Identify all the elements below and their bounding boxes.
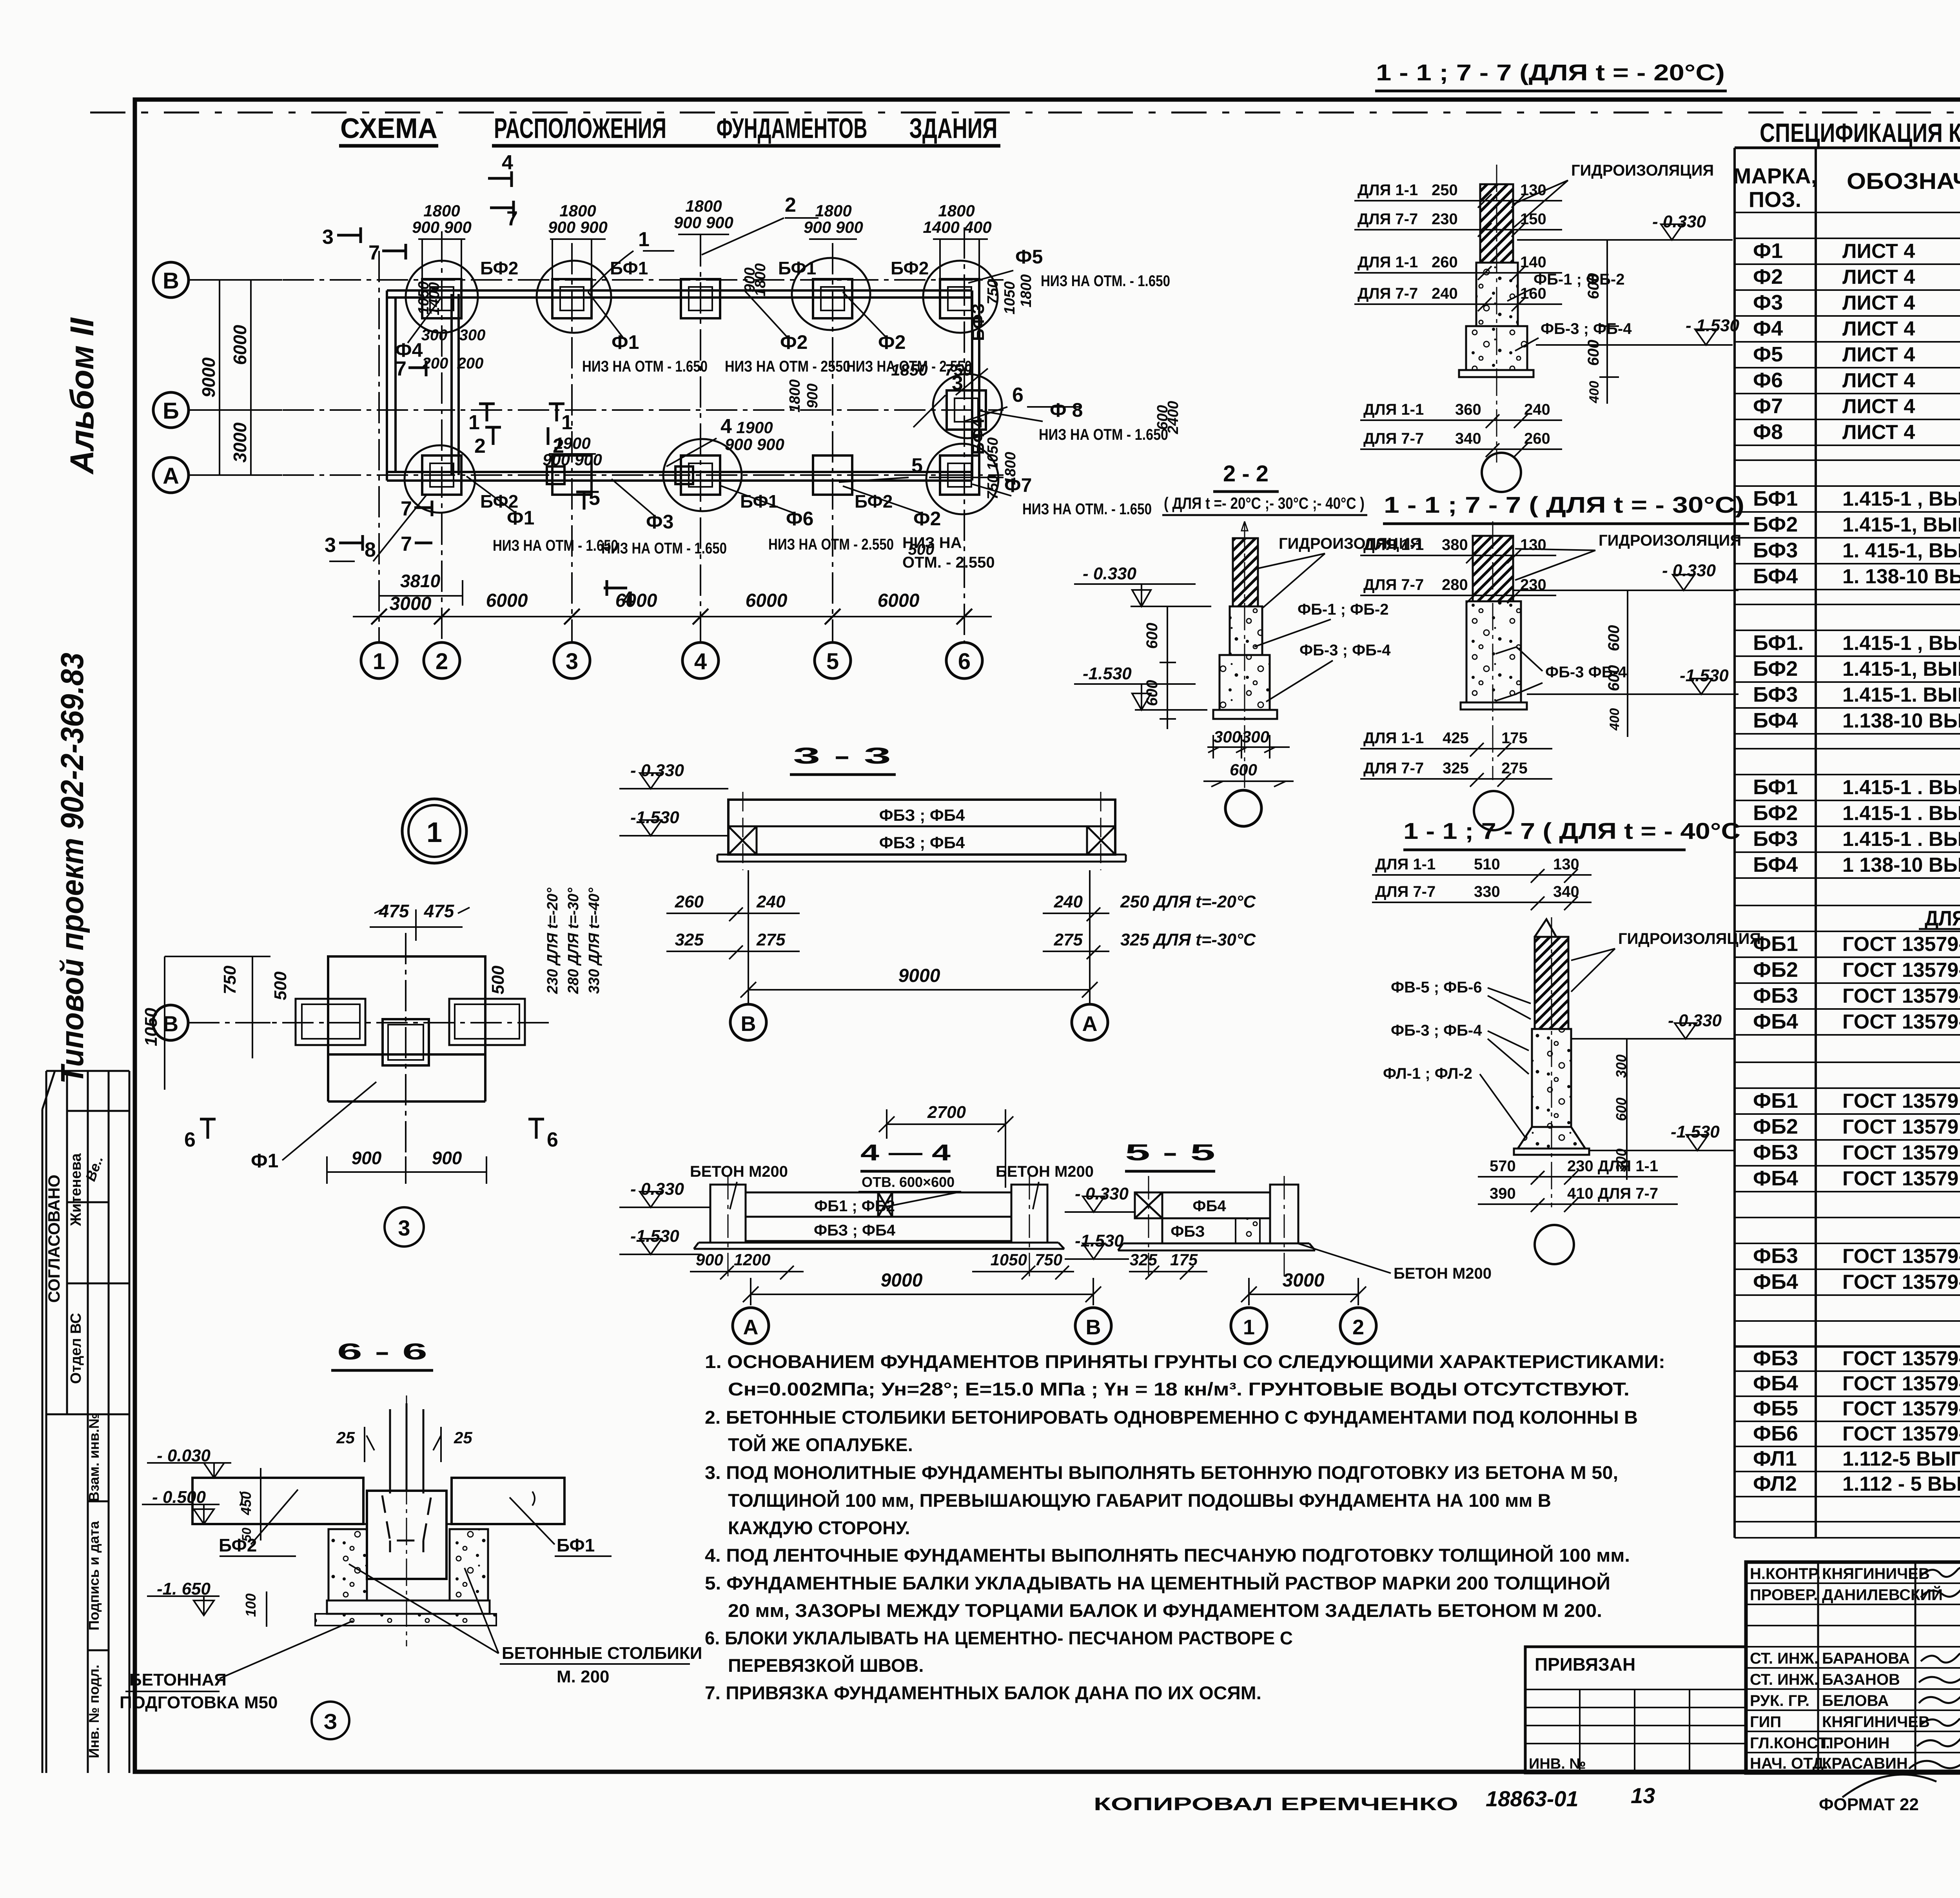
- svg-text:БФ4: БФ4: [969, 418, 988, 455]
- svg-text:1800: 1800: [1018, 274, 1034, 308]
- svg-text:ОБОЗНАЧЕНИЕ: ОБОЗНАЧЕНИЕ: [1847, 169, 1960, 194]
- svg-text:2700: 2700: [927, 1103, 966, 1122]
- svg-text:6: 6: [1012, 384, 1024, 406]
- svg-text:750: 750: [1035, 1250, 1062, 1269]
- svg-text:СТ. ИНЖ.: СТ. ИНЖ.: [1750, 1671, 1818, 1688]
- svg-text:Ф4: Ф4: [1753, 317, 1783, 340]
- svg-text:1800: 1800: [787, 379, 803, 413]
- svg-text:900: 900: [804, 383, 821, 408]
- svg-text:9000: 9000: [898, 965, 940, 986]
- svg-text:280 ДЛЯ t=-30°: 280 ДЛЯ t=-30°: [565, 887, 582, 994]
- svg-text:1. 138-10 ВЫП1.: 1. 138-10 ВЫП1.: [1842, 565, 1960, 588]
- svg-text:БЕЛОВА: БЕЛОВА: [1822, 1692, 1889, 1709]
- svg-text:Ф2: Ф2: [1753, 265, 1783, 289]
- svg-text:ДЛЯ 1-1: ДЛЯ 1-1: [1363, 729, 1424, 747]
- svg-text:А: А: [1082, 1012, 1098, 1036]
- svg-text:ПРИВЯЗАН: ПРИВЯЗАН: [1535, 1654, 1635, 1675]
- svg-text:ЗДАНИЯ: ЗДАНИЯ: [909, 113, 998, 144]
- svg-text:НИЗ НА ОТМ - 1.650: НИЗ НА ОТМ - 1.650: [601, 540, 727, 557]
- svg-text:300: 300: [1242, 728, 1269, 746]
- svg-text:БФЗ: БФЗ: [969, 303, 988, 341]
- svg-text:ФБ4: ФБ4: [1753, 1270, 1798, 1294]
- svg-text:750: 750: [220, 965, 240, 994]
- svg-text:БЕТОН М200: БЕТОН М200: [996, 1163, 1094, 1180]
- svg-text:3 - 3: 3 - 3: [793, 743, 891, 769]
- svg-text:БФ4: БФ4: [1753, 709, 1798, 732]
- svg-text:РУК. ГР.: РУК. ГР.: [1750, 1692, 1809, 1709]
- svg-text:БФ3: БФ3: [1753, 683, 1798, 706]
- svg-text:340: 340: [1455, 430, 1481, 447]
- svg-text:БФ2: БФ2: [219, 1535, 257, 1555]
- svg-text:НИЗ НА ОТМ - 1.650: НИЗ НА ОТМ - 1.650: [582, 358, 708, 375]
- svg-text:ЛИСТ 4: ЛИСТ 4: [1842, 343, 1915, 366]
- svg-text:1: 1: [638, 228, 650, 251]
- svg-text:БФ1: БФ1: [740, 491, 778, 512]
- svg-text:325: 325: [1130, 1250, 1158, 1269]
- svg-text:БФ2: БФ2: [480, 258, 518, 278]
- svg-text:ФБ3: ФБ3: [1753, 1244, 1798, 1268]
- svg-text:2 - 2: 2 - 2: [1223, 461, 1269, 486]
- svg-text:( ДЛЯ t =- 20°C ;- 30°C ;- 40°: ( ДЛЯ t =- 20°C ;- 30°C ;- 40°C ): [1164, 494, 1365, 512]
- svg-text:900 900: 900 900: [674, 213, 733, 232]
- svg-text:ОТВ. 600×600: ОТВ. 600×600: [862, 1174, 955, 1190]
- svg-text:900: 900: [432, 1148, 462, 1168]
- svg-text:900 900: 900 900: [548, 218, 608, 236]
- svg-text:Взам. инв.№: Взам. инв.№: [86, 1413, 102, 1502]
- svg-text:7: 7: [401, 533, 412, 555]
- svg-text:БЕТОННЫЕ СТОЛБИКИ: БЕТОННЫЕ СТОЛБИКИ: [502, 1644, 702, 1663]
- svg-text:6000: 6000: [486, 590, 528, 611]
- svg-text:ГОСТ 13579-78: ГОСТ 13579-78: [1842, 1011, 1960, 1033]
- svg-text:-1.530: -1.530: [1680, 666, 1729, 685]
- svg-text:МАРКА,: МАРКА,: [1733, 163, 1817, 188]
- svg-text:2: 2: [785, 194, 796, 216]
- svg-text:1200: 1200: [734, 1250, 770, 1269]
- svg-text:ФБ3: ФБ3: [1753, 1346, 1798, 1370]
- svg-text:1.138-10 ВЫП 1: 1.138-10 ВЫП 1: [1842, 709, 1960, 732]
- svg-text:230: 230: [1432, 210, 1458, 228]
- svg-text:ФБ-1 ; ФБ-2: ФБ-1 ; ФБ-2: [1298, 601, 1388, 618]
- svg-text:7: 7: [401, 497, 412, 520]
- svg-text:3810: 3810: [400, 571, 441, 591]
- svg-text:ФЛ1: ФЛ1: [1753, 1447, 1797, 1470]
- svg-text:1: 1: [373, 649, 385, 674]
- svg-text:4: 4: [720, 415, 732, 438]
- svg-text:9000: 9000: [198, 357, 219, 397]
- svg-text:Ф7: Ф7: [1753, 394, 1783, 418]
- svg-text:ФБ4: ФБ4: [1753, 1372, 1798, 1395]
- svg-text:410 ДЛЯ 7-7: 410 ДЛЯ 7-7: [1567, 1185, 1658, 1202]
- svg-text:БАЗАНОВ: БАЗАНОВ: [1822, 1671, 1900, 1688]
- svg-text:ОТМ. - 2.550: ОТМ. - 2.550: [902, 554, 995, 571]
- svg-text:ГОСТ 13579-78: ГОСТ 13579-78: [1842, 1347, 1960, 1370]
- svg-text:ФБ4: ФБ4: [1753, 1167, 1798, 1190]
- svg-text:4 — 4: 4 — 4: [860, 1140, 951, 1165]
- svg-text:ДЛЯ 1-1: ДЛЯ 1-1: [1357, 181, 1418, 199]
- svg-text:1.415-1, ВЫП. 1: 1.415-1, ВЫП. 1: [1842, 658, 1960, 680]
- svg-text:ДЛЯ 7-7: ДЛЯ 7-7: [1357, 210, 1418, 228]
- svg-text:1800: 1800: [815, 201, 851, 220]
- svg-text:900: 900: [696, 1250, 723, 1269]
- svg-text:ФУНДАМЕНТОВ: ФУНДАМЕНТОВ: [717, 113, 867, 144]
- svg-text:275: 275: [1501, 760, 1528, 777]
- svg-text:230 ДЛЯ 1-1: 230 ДЛЯ 1-1: [1567, 1158, 1658, 1175]
- svg-text:260: 260: [1524, 430, 1550, 447]
- svg-text:ГОСТ 13579-78: ГОСТ 13579-78: [1842, 1423, 1960, 1445]
- svg-text:450: 450: [238, 1492, 254, 1515]
- svg-text:ЛИСТ 4: ЛИСТ 4: [1842, 240, 1915, 263]
- svg-text:20 мм, ЗАЗОРЫ МЕЖДУ ТОРЦАМИ: 20 мм, ЗАЗОРЫ МЕЖДУ ТОРЦАМИ БАЛОК И ФУНД…: [728, 1600, 1602, 1621]
- svg-text:ГОСТ 13579-78: ГОСТ 13579-78: [1842, 959, 1960, 982]
- svg-text:ТОЛЩИНОЙ 100 мм, ПРЕВЫШАЮЩУЮ: ТОЛЩИНОЙ 100 мм, ПРЕВЫШАЮЩУЮ ГАБАРИТ ПОД…: [728, 1490, 1551, 1511]
- svg-text:Ф1: Ф1: [612, 331, 639, 353]
- svg-text:Отдел ВС: Отдел ВС: [68, 1313, 84, 1384]
- svg-text:4: 4: [502, 151, 513, 174]
- svg-text:6: 6: [958, 649, 971, 674]
- svg-text:ФБ4: ФБ4: [1753, 1010, 1798, 1033]
- svg-text:5 - 5: 5 - 5: [1125, 1140, 1215, 1165]
- svg-text:ГИДРОИЗОЛЯЦИЯ: ГИДРОИЗОЛЯЦИЯ: [1618, 930, 1761, 947]
- svg-text:600: 600: [1230, 760, 1257, 779]
- svg-text:ПОДГОТОВКА М50: ПОДГОТОВКА М50: [120, 1693, 278, 1712]
- svg-text:БФ4: БФ4: [1753, 564, 1798, 588]
- svg-text:360: 360: [1455, 401, 1481, 418]
- svg-text:ГОСТ 13579-78: ГОСТ 13579-78: [1842, 1397, 1960, 1420]
- svg-text:250: 250: [1432, 181, 1458, 199]
- svg-text:СПЕЦИФИКАЦИЯ К СХЕМЕ РАСПОЛО: СПЕЦИФИКАЦИЯ К СХЕМЕ РАСПОЛОЖЕНИЯ ФУНДАМ…: [1760, 118, 1960, 148]
- svg-text:280: 280: [1442, 576, 1468, 593]
- svg-text:ГОСТ 13579 - 78: ГОСТ 13579 - 78: [1842, 1116, 1960, 1138]
- svg-text:БФ1.: БФ1.: [1753, 631, 1804, 655]
- svg-text:6. БЛОКИ УКЛАЛЫВАТЬ НА ЦЕМЕ: 6. БЛОКИ УКЛАЛЫВАТЬ НА ЦЕМЕНТНО- ПЕСЧАНО…: [705, 1628, 1293, 1648]
- svg-text:1.415-1 . ВЫП. 1: 1.415-1 . ВЫП. 1: [1842, 802, 1960, 825]
- svg-text:7: 7: [506, 207, 518, 230]
- svg-text:6000: 6000: [746, 590, 788, 611]
- svg-text:Ф2: Ф2: [913, 508, 941, 530]
- svg-text:ПЕРЕВЯЗКОЙ ШВОВ.: ПЕРЕВЯЗКОЙ ШВОВ.: [728, 1655, 924, 1676]
- svg-text:3000: 3000: [230, 422, 250, 463]
- svg-text:ДЛЯ 1-1: ДЛЯ 1-1: [1363, 401, 1424, 418]
- svg-text:А: А: [163, 463, 179, 489]
- svg-text:ПРОВЕР.: ПРОВЕР.: [1750, 1586, 1818, 1604]
- svg-text:СОГЛАСОВАНО: СОГЛАСОВАНО: [45, 1175, 63, 1303]
- svg-text:БФ3: БФ3: [1753, 827, 1798, 851]
- svg-text:6: 6: [184, 1129, 196, 1151]
- svg-text:ДЛЯ 7-7: ДЛЯ 7-7: [1363, 576, 1424, 593]
- svg-text:130: 130: [1553, 856, 1579, 873]
- svg-text:1050: 1050: [991, 1250, 1027, 1269]
- svg-text:НИЗ НА ОТМ. - 1.650: НИЗ НА ОТМ. - 1.650: [1022, 501, 1152, 518]
- svg-text:ГОСТ 13579-78: ГОСТ 13579-78: [1842, 985, 1960, 1007]
- svg-text:ФЛ-1 ; ФЛ-2: ФЛ-1 ; ФЛ-2: [1383, 1065, 1472, 1082]
- svg-text:325: 325: [1443, 760, 1469, 777]
- svg-text:Инв. № подл.: Инв. № подл.: [86, 1665, 102, 1758]
- svg-text:275: 275: [756, 930, 786, 949]
- svg-text:ФБ2: ФБ2: [1753, 958, 1798, 982]
- svg-text:475: 475: [424, 901, 455, 921]
- svg-text:1.415-1. ВЫП 1: 1.415-1. ВЫП 1: [1842, 684, 1960, 706]
- svg-text:275: 275: [1054, 930, 1083, 949]
- svg-text:1: 1: [1243, 1316, 1255, 1339]
- svg-text:340: 340: [1553, 883, 1579, 900]
- svg-text:1050: 1050: [1002, 281, 1018, 315]
- svg-text:1 - 1 ; 7 - 7 ( ДЛЯ t = - 3: 1 - 1 ; 7 - 7 ( ДЛЯ t = - 30°C): [1384, 492, 1744, 518]
- svg-text:400: 400: [1587, 381, 1602, 404]
- svg-text:НИЗ НА ОТМ. - 1.650: НИЗ НА ОТМ. - 1.650: [1041, 272, 1170, 290]
- svg-text:ГОСТ 13579 - 78: ГОСТ 13579 - 78: [1842, 1167, 1960, 1190]
- svg-text:ФБЗ ; ФБ4: ФБЗ ; ФБ4: [879, 806, 965, 824]
- svg-text:1: 1: [561, 411, 573, 434]
- svg-text:ГОСТ 13579-78: ГОСТ 13579-78: [1842, 1245, 1960, 1268]
- svg-text:СХЕМА: СХЕМА: [340, 113, 437, 144]
- svg-text:ГИДРОИЗОЛЯЦИЯ: ГИДРОИЗОЛЯЦИЯ: [1571, 162, 1714, 179]
- svg-text:1: 1: [426, 817, 442, 848]
- svg-text:1.415-1 . ВЫП. 1: 1.415-1 . ВЫП. 1: [1842, 828, 1960, 851]
- svg-text:5: 5: [911, 454, 923, 477]
- svg-text:1 - 1 ; 7 - 7 ( ДЛЯ t = - 4: 1 - 1 ; 7 - 7 ( ДЛЯ t = - 40°C: [1403, 818, 1740, 844]
- svg-text:900 900: 900 900: [725, 435, 784, 454]
- svg-text:600: 600: [1143, 623, 1161, 649]
- svg-text:ФБ3: ФБ3: [1753, 984, 1798, 1007]
- svg-text:- 1.530: - 1.530: [1686, 316, 1740, 335]
- svg-text:260: 260: [1432, 254, 1458, 271]
- svg-text:ГОСТ 13579 - 78: ГОСТ 13579 - 78: [1842, 1090, 1960, 1112]
- svg-text:1800: 1800: [752, 263, 769, 297]
- svg-text:325: 325: [675, 930, 704, 949]
- svg-text:Н.КОНТР.: Н.КОНТР.: [1750, 1565, 1821, 1582]
- svg-text:ГОСТ 13579-78: ГОСТ 13579-78: [1842, 933, 1960, 956]
- svg-text:БФ2: БФ2: [891, 258, 929, 278]
- svg-text:-1.530: -1.530: [630, 808, 679, 827]
- svg-text:Ф1: Ф1: [1753, 239, 1783, 263]
- svg-text:КОПИРОВАЛ ЕРЕМЧЕНКО: КОПИРОВАЛ ЕРЕМЧЕНКО: [1094, 1794, 1458, 1814]
- svg-text:900 900: 900 900: [804, 218, 863, 236]
- svg-text:Ф3: Ф3: [646, 511, 673, 533]
- svg-text:5: 5: [589, 487, 600, 510]
- svg-text:НАЧ. ОТД.: НАЧ. ОТД.: [1750, 1755, 1828, 1772]
- svg-text:1.112-5 ВЫП. 2: 1.112-5 ВЫП. 2: [1842, 1448, 1960, 1470]
- svg-text:Ф3: Ф3: [1753, 291, 1783, 314]
- svg-text:БФ1: БФ1: [610, 258, 648, 278]
- svg-text:ИНВ. №: ИНВ. №: [1529, 1756, 1586, 1772]
- svg-text:БФ2: БФ2: [1753, 513, 1798, 536]
- svg-text:570: 570: [1490, 1158, 1516, 1175]
- svg-text:500: 500: [488, 965, 508, 994]
- svg-text:Типовой проект 902-2-369.83: Типовой проект 902-2-369.83: [54, 653, 90, 1084]
- svg-text:4: 4: [622, 588, 634, 610]
- svg-text:1.415-1 . ВЫП. 1: 1.415-1 . ВЫП. 1: [1842, 776, 1960, 799]
- svg-text:1.415-1, ВЫП. 1: 1.415-1, ВЫП. 1: [1842, 514, 1960, 536]
- svg-text:БФ1: БФ1: [1753, 487, 1798, 510]
- svg-text:750: 750: [985, 279, 1001, 304]
- svg-text:1. ОСНОВАНИЕМ ФУНДАМЕНТОВ ПР: 1. ОСНОВАНИЕМ ФУНДАМЕНТОВ ПРИНЯТЫ ГРУНТЫ…: [705, 1351, 1665, 1372]
- svg-text:1400 400: 1400 400: [923, 218, 991, 236]
- svg-text:ГИП: ГИП: [1750, 1713, 1781, 1731]
- svg-text:Сн=0.002МПа; Ун=28°; Е=15.0: Сн=0.002МПа; Ун=28°; Е=15.0 МПа ; Үн = 1…: [728, 1379, 1630, 1399]
- svg-text:НИЗ НА ОТМ - 1.650: НИЗ НА ОТМ - 1.650: [493, 537, 618, 554]
- svg-text:-1.530: -1.530: [1075, 1231, 1124, 1250]
- svg-text:ДЛЯ 7-7: ДЛЯ 7-7: [1363, 430, 1424, 447]
- svg-text:200: 200: [457, 355, 484, 372]
- svg-text:ФБ3: ФБ3: [1753, 1141, 1798, 1164]
- svg-text:1. 415-1, ВЫП. 1: 1. 415-1, ВЫП. 1: [1842, 539, 1960, 562]
- svg-text:3. ПОД МОНОЛИТНЫЕ ФУНДАМЕНТЫ: 3. ПОД МОНОЛИТНЫЕ ФУНДАМЕНТЫ ВЫПОЛНЯТЬ Б…: [705, 1462, 1618, 1483]
- svg-text:240: 240: [1524, 401, 1550, 418]
- svg-text:600: 600: [1143, 680, 1161, 706]
- svg-text:330 ДЛЯ t=-40°: 330 ДЛЯ t=-40°: [586, 887, 603, 994]
- svg-text:КНЯГИНИЧЕВ: КНЯГИНИЧЕВ: [1822, 1565, 1930, 1582]
- svg-text:В: В: [163, 268, 179, 294]
- svg-text:ЛИСТ 4: ЛИСТ 4: [1842, 421, 1915, 444]
- svg-text:475: 475: [379, 901, 410, 921]
- svg-text:380: 380: [1442, 536, 1468, 553]
- svg-text:250 ДЛЯ t=-20°C: 250 ДЛЯ t=-20°C: [1120, 892, 1256, 911]
- svg-text:175: 175: [1501, 729, 1528, 747]
- svg-text:510: 510: [1474, 856, 1500, 873]
- svg-text:ГИДРОИЗОЛЯЦИЯ: ГИДРОИЗОЛЯЦИЯ: [1599, 532, 1741, 549]
- svg-text:БФ4: БФ4: [1753, 853, 1798, 876]
- svg-text:З: З: [323, 1709, 337, 1734]
- svg-text:240: 240: [1432, 285, 1458, 302]
- svg-text:КНЯГИНИЧЕВ: КНЯГИНИЧЕВ: [1822, 1713, 1930, 1731]
- svg-text:1.112 - 5 ВЫП. 2: 1.112 - 5 ВЫП. 2: [1842, 1473, 1960, 1495]
- svg-text:Ф6: Ф6: [1753, 368, 1783, 392]
- svg-text:6000: 6000: [878, 590, 920, 611]
- svg-text:300: 300: [1613, 1054, 1629, 1078]
- svg-text:-1.530: -1.530: [1083, 664, 1132, 683]
- svg-text:6000: 6000: [615, 590, 657, 611]
- svg-text:230 ДЛЯ t=-20°: 230 ДЛЯ t=-20°: [544, 887, 561, 994]
- svg-text:ФБЗ ; ФБ4: ФБЗ ; ФБ4: [879, 833, 965, 852]
- svg-text:1800: 1800: [423, 201, 460, 220]
- svg-text:4: 4: [694, 649, 707, 674]
- svg-text:600: 600: [1613, 1098, 1629, 1121]
- svg-text:ДЛЯ 1-1: ДЛЯ 1-1: [1357, 254, 1418, 271]
- svg-text:Ф2: Ф2: [878, 331, 906, 353]
- svg-text:1800: 1800: [559, 201, 596, 220]
- svg-text:2: 2: [1352, 1316, 1364, 1339]
- svg-text:НИЗ НА ОТМ - 2550: НИЗ НА ОТМ - 2550: [725, 358, 850, 375]
- svg-text:Ф1: Ф1: [251, 1150, 278, 1172]
- svg-text:БЕТОННАЯ: БЕТОННАЯ: [129, 1670, 227, 1689]
- svg-text:БАРАНОВА: БАРАНОВА: [1822, 1650, 1910, 1667]
- svg-text:ГОСТ 13579-78: ГОСТ 13579-78: [1842, 1372, 1960, 1395]
- svg-text:ДЛЯ 7-7: ДЛЯ 7-7: [1363, 760, 1424, 777]
- svg-text:100: 100: [243, 1593, 259, 1617]
- svg-text:Житенева: Житенева: [68, 1153, 84, 1226]
- svg-text:ГЛ.КОНСТ.: ГЛ.КОНСТ.: [1750, 1735, 1830, 1752]
- svg-text:900: 900: [352, 1148, 382, 1168]
- svg-text:1 138-10 ВЫП 1: 1 138-10 ВЫП 1: [1842, 854, 1960, 876]
- svg-text:4. ПОД ЛЕНТОЧНЫЕ ФУНДАМЕНТЫ: 4. ПОД ЛЕНТОЧНЫЕ ФУНДАМЕНТЫ ВЫПОЛНЯТЬ ПЕ…: [705, 1545, 1630, 1566]
- svg-text:600: 600: [1605, 665, 1622, 691]
- svg-text:3: 3: [398, 1216, 410, 1240]
- svg-text:БФ3: БФ3: [1753, 539, 1798, 562]
- svg-text:Б: Б: [163, 398, 179, 424]
- svg-text:300: 300: [421, 327, 448, 344]
- svg-text:ГОСТ 13579-78: ГОСТ 13579-78: [1842, 1271, 1960, 1294]
- svg-text:130: 130: [1520, 536, 1546, 553]
- svg-text:2. БЕТОННЫЕ СТОЛБИКИ БЕТОНИР: 2. БЕТОННЫЕ СТОЛБИКИ БЕТОНИРОВАТЬ ОДНОВР…: [705, 1407, 1638, 1428]
- svg-text:ФОРМАТ 22: ФОРМАТ 22: [1819, 1795, 1919, 1814]
- svg-text:ЛИСТ 4: ЛИСТ 4: [1842, 292, 1915, 314]
- svg-text:Ф 8: Ф 8: [1050, 399, 1083, 421]
- svg-text:ПОЗ.: ПОЗ.: [1749, 187, 1801, 212]
- svg-text:ГОСТ 13579 - 78: ГОСТ 13579 - 78: [1842, 1141, 1960, 1164]
- svg-text:БФ2: БФ2: [1753, 657, 1798, 680]
- svg-text:КАЖДУЮ СТОРОНУ.: КАЖДУЮ СТОРОНУ.: [728, 1517, 910, 1538]
- svg-text:1: 1: [468, 411, 480, 434]
- svg-text:6: 6: [547, 1129, 558, 1151]
- svg-text:- 0.330: - 0.330: [1668, 1011, 1722, 1030]
- svg-text:600: 600: [1585, 273, 1602, 299]
- svg-text:ДЛЯ 7-7: ДЛЯ 7-7: [1375, 883, 1436, 900]
- svg-text:ФБ1: ФБ1: [1753, 1089, 1798, 1112]
- svg-text:БЕТОН М200: БЕТОН М200: [690, 1163, 788, 1180]
- svg-text:1800: 1800: [685, 197, 722, 215]
- svg-text:ФБ2: ФБ2: [1753, 1115, 1798, 1138]
- svg-text:БФ1: БФ1: [778, 258, 816, 278]
- svg-text:ФБЗ ; ФБ4: ФБЗ ; ФБ4: [814, 1222, 896, 1239]
- svg-text:1 - 1 ; 7 - 7 (ДЛЯ t = - 20: 1 - 1 ; 7 - 7 (ДЛЯ t = - 20°C): [1376, 60, 1725, 85]
- svg-text:ФВ-5 ; ФБ-6: ФВ-5 ; ФБ-6: [1391, 979, 1482, 996]
- svg-text:325 ДЛЯ t=-30°C: 325 ДЛЯ t=-30°C: [1120, 930, 1256, 949]
- svg-text:7: 7: [395, 357, 407, 380]
- svg-text:ТОЙ ЖЕ ОПАЛУБКЕ.: ТОЙ ЖЕ ОПАЛУБКЕ.: [728, 1434, 913, 1455]
- svg-text:СТ. ИНЖ.: СТ. ИНЖ.: [1750, 1650, 1818, 1667]
- svg-text:5. ФУНДАМЕНТНЫЕ БАЛКИ УКЛАДЫ: 5. ФУНДАМЕНТНЫЕ БАЛКИ УКЛАДЫВАТЬ НА ЦЕМЕ…: [705, 1573, 1610, 1593]
- svg-text:БФ1: БФ1: [1753, 775, 1798, 799]
- svg-text:БФ2: БФ2: [1753, 801, 1798, 825]
- svg-text:В: В: [741, 1012, 756, 1036]
- svg-text:9000: 9000: [881, 1270, 923, 1291]
- svg-text:В: В: [1086, 1316, 1101, 1339]
- svg-text:1800: 1800: [938, 201, 975, 220]
- svg-text:500: 500: [271, 971, 290, 1000]
- svg-text:300: 300: [1214, 728, 1241, 746]
- svg-text:ЛИСТ 4: ЛИСТ 4: [1842, 318, 1915, 340]
- svg-text:600: 600: [1585, 340, 1602, 366]
- svg-text:Подпись и дата: Подпись и дата: [86, 1521, 102, 1631]
- svg-text:1900: 1900: [736, 418, 773, 437]
- svg-text:Ф8: Ф8: [1753, 420, 1783, 444]
- svg-text:ПРОНИН: ПРОНИН: [1822, 1735, 1890, 1752]
- svg-text:- 0.330: - 0.330: [1662, 561, 1716, 580]
- svg-text:18863-01: 18863-01: [1486, 1786, 1579, 1811]
- svg-text:НИЗ НА ОТМ - 1.650: НИЗ НА ОТМ - 1.650: [1039, 426, 1168, 443]
- svg-text:240: 240: [1054, 892, 1083, 911]
- svg-text:400: 400: [1607, 708, 1622, 731]
- svg-text:ЛИСТ 4: ЛИСТ 4: [1842, 266, 1915, 289]
- svg-text:ФБ-3 ; ФБ-4: ФБ-3 ; ФБ-4: [1391, 1022, 1482, 1039]
- svg-text:ДЛЯ t = - 20°С ; - 30°С ; - 40: ДЛЯ t = - 20°С ; - 30°С ; - 40°С: [1925, 907, 1960, 930]
- svg-text:ФЛ2: ФЛ2: [1753, 1472, 1797, 1495]
- svg-text:ЛИСТ 4: ЛИСТ 4: [1842, 369, 1915, 392]
- svg-text:5: 5: [826, 649, 839, 674]
- svg-text:БЕТОН М200: БЕТОН М200: [1394, 1265, 1492, 1282]
- svg-text:600: 600: [1605, 625, 1622, 651]
- svg-text:6000: 6000: [230, 325, 250, 365]
- svg-text:Альбом II: Альбом II: [64, 317, 100, 475]
- svg-text:ДЛЯ 7-7: ДЛЯ 7-7: [1357, 285, 1418, 302]
- svg-text:ФБ-3 ; ФБ-4: ФБ-3 ; ФБ-4: [1299, 642, 1391, 659]
- svg-text:ЛИСТ 4: ЛИСТ 4: [1842, 395, 1915, 418]
- svg-text:- 0.330: - 0.330: [630, 1179, 684, 1199]
- svg-text:390: 390: [1490, 1185, 1516, 1202]
- svg-text:1050: 1050: [142, 1008, 161, 1046]
- svg-text:3: 3: [566, 649, 578, 674]
- svg-text:ГИДРОИЗОЛЯЦИЯ: ГИДРОИЗОЛЯЦИЯ: [1279, 535, 1421, 552]
